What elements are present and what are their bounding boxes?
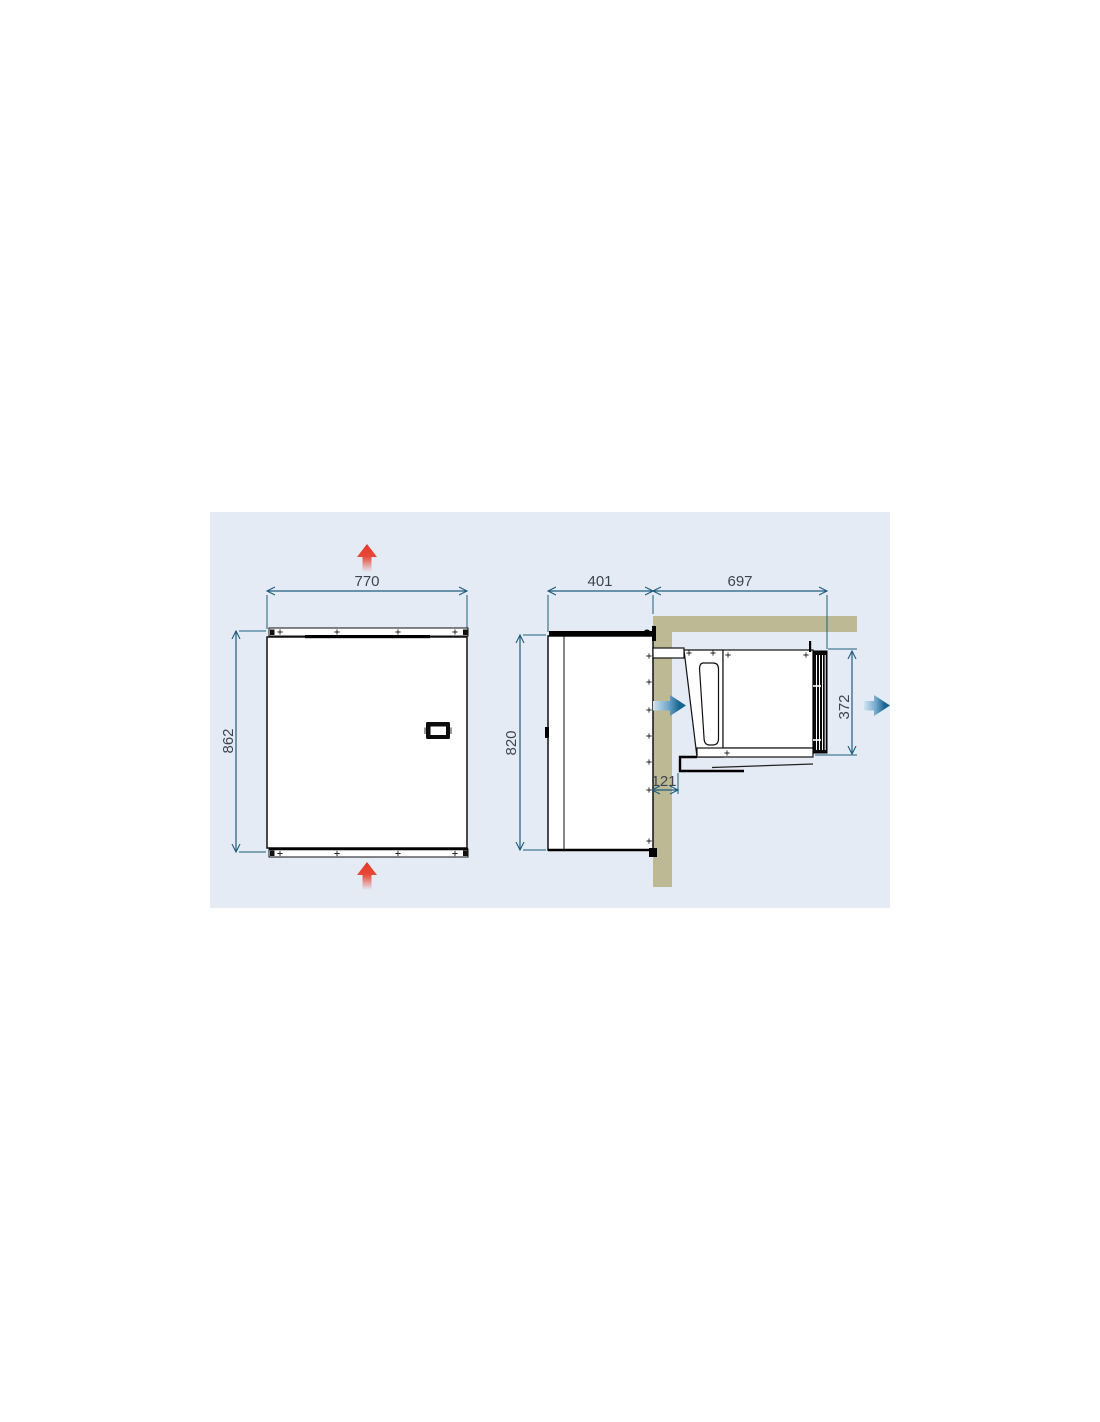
front-height-label: 862 <box>220 728 237 753</box>
side-protrusion-label: 697 <box>727 573 752 590</box>
bottom-offset-label: 121 <box>651 773 676 790</box>
drawing-canvas: 770 862 <box>0 0 1100 1422</box>
cold-room-ceiling <box>653 616 857 632</box>
condenser-bottom-lip <box>697 748 813 757</box>
front-bottom-flange <box>269 849 468 857</box>
technical-drawing: 770 862 <box>0 0 1100 1422</box>
side-cabinet-body <box>545 626 657 857</box>
front-cabinet-body <box>267 637 467 848</box>
condenser-height-label: 372 <box>836 694 853 719</box>
side-depth-label: 401 <box>587 573 612 590</box>
condenser-grille <box>813 651 827 753</box>
side-height-label: 820 <box>503 730 520 755</box>
control-display <box>424 722 452 739</box>
side-hinge-mark <box>545 727 549 738</box>
top-gasket-strip <box>305 635 430 638</box>
through-wall-rail <box>653 648 684 658</box>
front-width-label: 770 <box>354 573 379 590</box>
side-top-cap <box>549 631 656 636</box>
